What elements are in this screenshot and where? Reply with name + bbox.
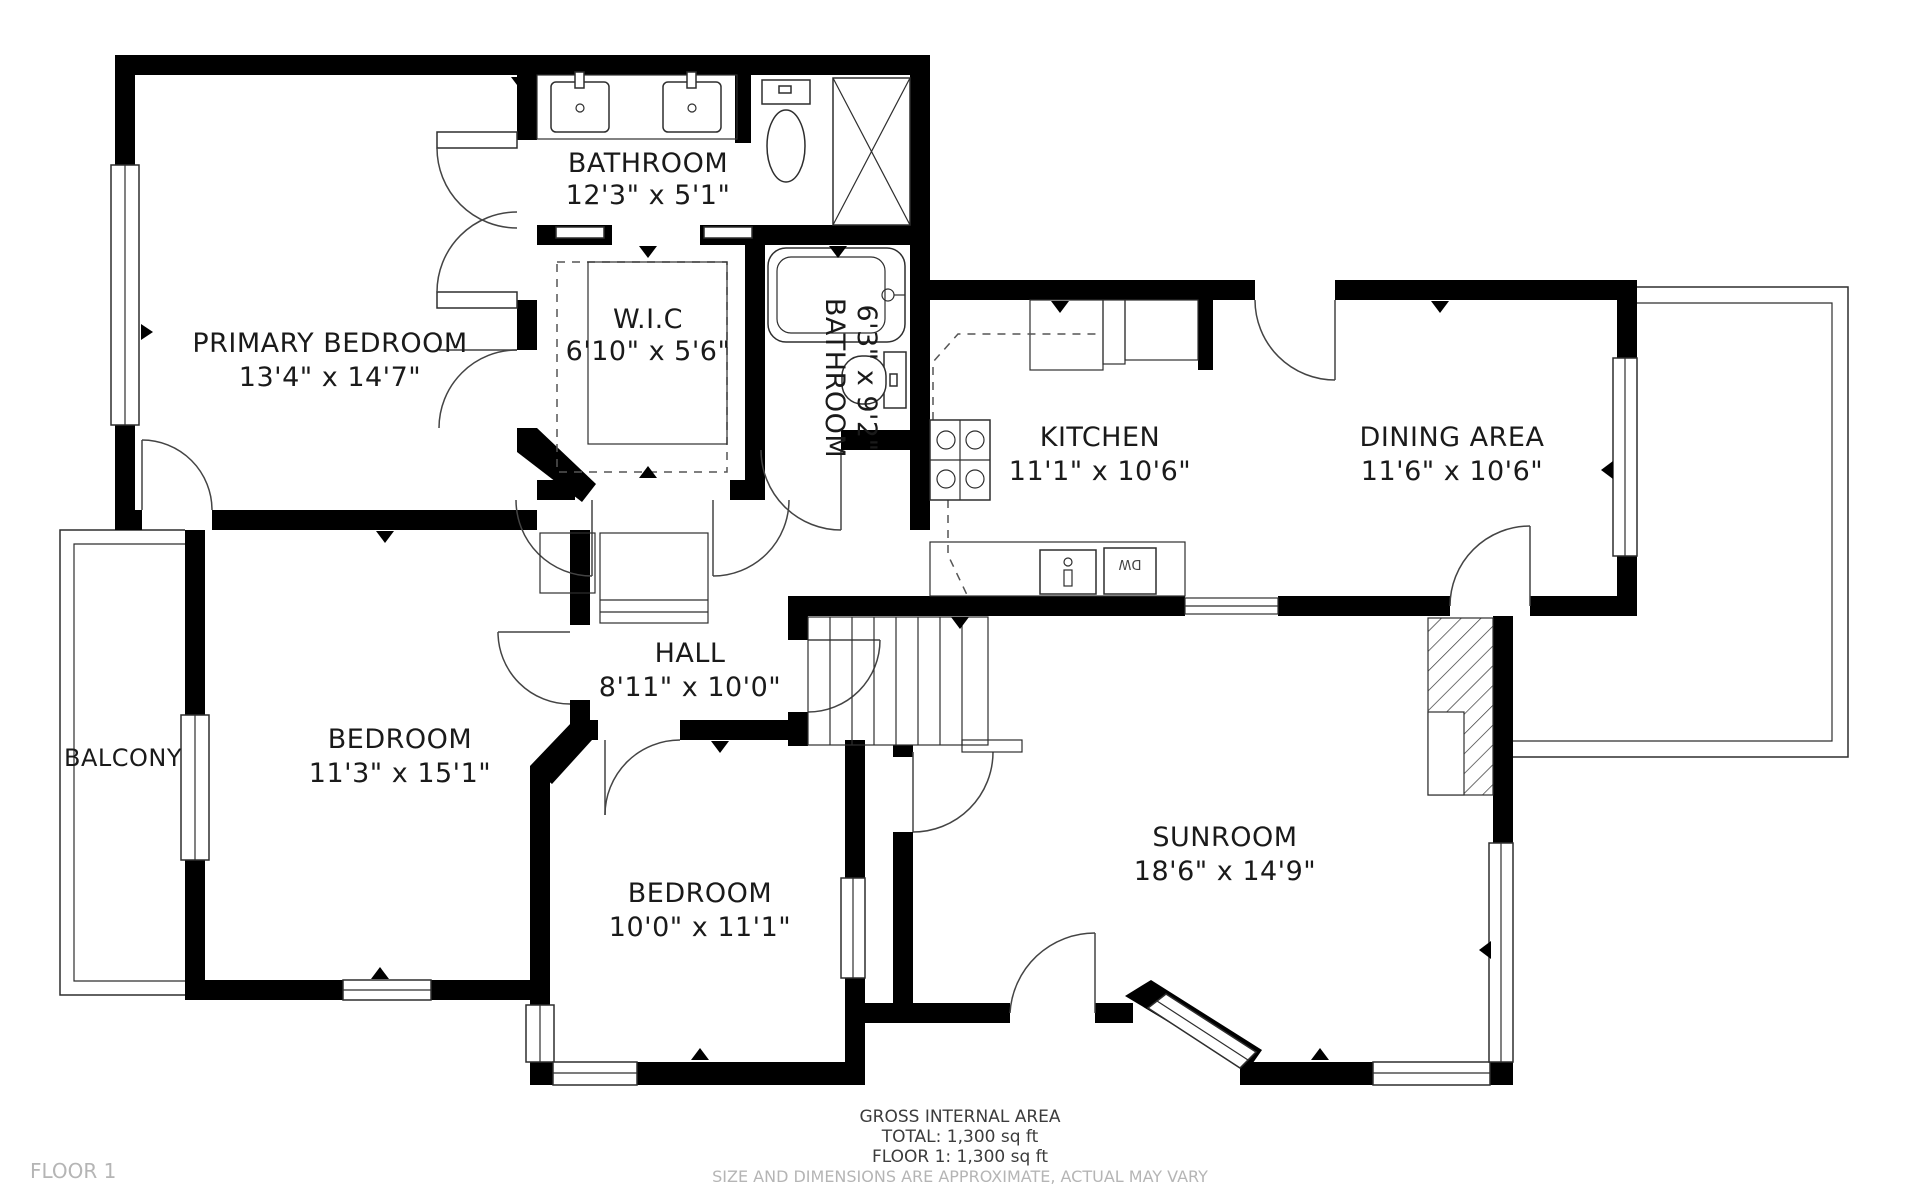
door-arc bbox=[713, 500, 789, 576]
room-dims-kitchen: 11'1" x 10'6" bbox=[1009, 456, 1191, 487]
room-label-dining: DINING AREA bbox=[1360, 422, 1545, 453]
room-label-balcony: BALCONY bbox=[64, 744, 182, 772]
footer-total: TOTAL: 1,300 sq ft bbox=[881, 1127, 1039, 1147]
window bbox=[111, 165, 139, 425]
door-arc bbox=[1450, 526, 1530, 606]
window bbox=[343, 980, 431, 1000]
room-dims-primary-bedroom: 13'4" x 14'7" bbox=[239, 362, 421, 393]
door-arc bbox=[1010, 933, 1095, 1013]
room-dims-bedroom-left: 11'3" x 15'1" bbox=[309, 758, 491, 789]
sink-icon bbox=[551, 72, 609, 132]
bathroom-vanity bbox=[537, 72, 737, 139]
door-arc bbox=[439, 350, 517, 428]
room-label-bathroom-top: BATHROOM bbox=[568, 148, 728, 179]
footer: GROSS INTERNAL AREA TOTAL: 1,300 sq ft F… bbox=[30, 1107, 1208, 1186]
room-label-kitchen: KITCHEN bbox=[1040, 422, 1161, 453]
stove-icon bbox=[930, 420, 990, 500]
door-arc bbox=[1255, 300, 1335, 380]
room-dims-bathroom-top: 12'3" x 5'1" bbox=[566, 180, 731, 211]
footer-floor1-area: FLOOR 1: 1,300 sq ft bbox=[872, 1147, 1048, 1167]
door-arc bbox=[498, 632, 570, 704]
toilet-icon bbox=[762, 80, 810, 182]
deck-outline bbox=[1513, 287, 1848, 757]
door-arc bbox=[913, 752, 993, 832]
kitchen-sink-icon bbox=[1040, 550, 1096, 594]
window bbox=[1489, 843, 1513, 1062]
sink-icon bbox=[663, 72, 721, 132]
window bbox=[553, 1062, 637, 1085]
hall-closets bbox=[540, 533, 708, 623]
shower-icon bbox=[833, 78, 910, 225]
chimney-hatch bbox=[1428, 618, 1493, 795]
room-dims-hall: 8'11" x 10'0" bbox=[599, 672, 781, 703]
stairs bbox=[808, 617, 1022, 752]
footer-gross-area: GROSS INTERNAL AREA bbox=[859, 1107, 1060, 1127]
dishwasher-icon: DW bbox=[1104, 548, 1156, 594]
door-arc bbox=[761, 450, 841, 530]
floor-plan-canvas: DW PRIMARY BEDROOM 13'4" x 14' bbox=[0, 0, 1920, 1200]
window bbox=[841, 878, 865, 978]
window-diagonal bbox=[1148, 994, 1256, 1068]
room-label-hall: HALL bbox=[655, 638, 726, 669]
door-arc bbox=[808, 640, 880, 712]
footer-disclaimer: SIZE AND DIMENSIONS ARE APPROXIMATE, ACT… bbox=[712, 1167, 1208, 1186]
room-dims-dining: 11'6" x 10'6" bbox=[1361, 456, 1543, 487]
window bbox=[1373, 1062, 1490, 1085]
room-label-sunroom: SUNROOM bbox=[1152, 822, 1297, 853]
floor-plan-page: DW PRIMARY BEDROOM 13'4" x 14' bbox=[0, 0, 1920, 1200]
room-dims-sunroom: 18'6" x 14'9" bbox=[1134, 856, 1316, 887]
room-dims-wic: 6'10" x 5'6" bbox=[566, 336, 731, 367]
dishwasher-label: DW bbox=[1118, 556, 1141, 571]
room-dims-bedroom-bottom: 10'0" x 11'1" bbox=[609, 912, 791, 943]
window bbox=[1613, 358, 1637, 556]
window bbox=[526, 1005, 554, 1062]
floor-label: FLOOR 1 bbox=[30, 1159, 116, 1183]
room-label-bathroom-small: BATHROOM bbox=[819, 298, 850, 458]
room-label-primary-bedroom: PRIMARY BEDROOM bbox=[192, 328, 467, 359]
door-arc bbox=[142, 440, 212, 510]
room-label-bedroom-bottom: BEDROOM bbox=[628, 878, 772, 909]
door-arc bbox=[605, 740, 680, 815]
window bbox=[181, 715, 209, 860]
room-dims-bathroom-small: 6'3" x 9'2" bbox=[851, 304, 882, 451]
wic-closet bbox=[557, 262, 727, 472]
room-label-wic: W.I.C bbox=[613, 304, 683, 335]
room-label-bedroom-left: BEDROOM bbox=[328, 724, 472, 755]
